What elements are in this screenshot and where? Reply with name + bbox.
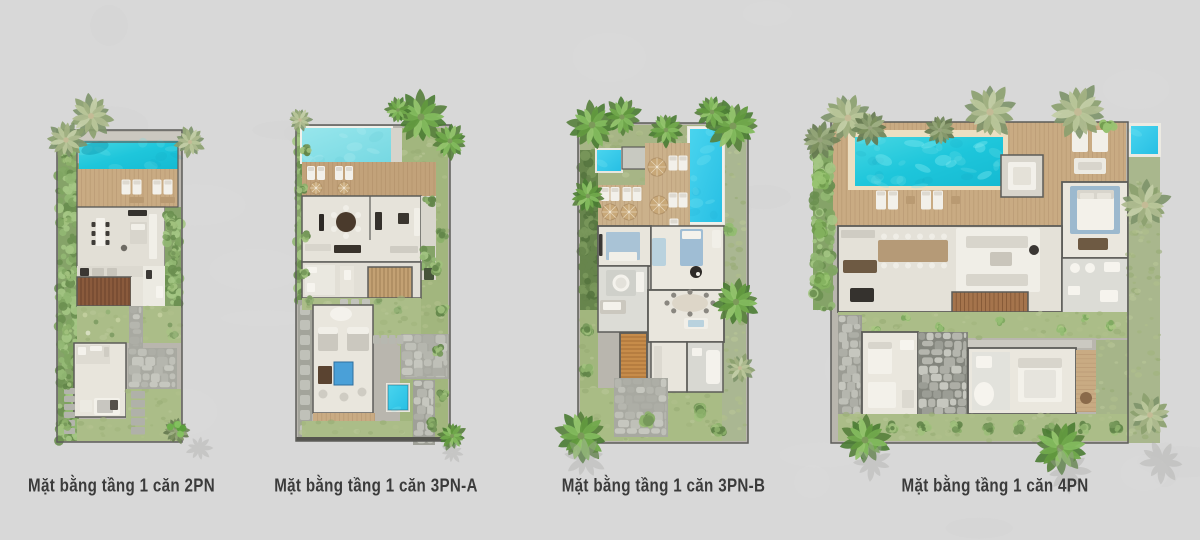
svg-text:Mặt bằng tầng 1 căn 4PN: Mặt bằng tầng 1 căn 4PN	[902, 475, 1089, 496]
svg-text:Mặt bằng tầng 1 căn 2PN: Mặt bằng tầng 1 căn 2PN	[28, 475, 215, 496]
svg-text:Mặt bằng tầng 1 căn 3PN-A: Mặt bằng tầng 1 căn 3PN-A	[274, 475, 478, 496]
svg-text:Mặt bằng tầng 1 căn 3PN-B: Mặt bằng tầng 1 căn 3PN-B	[562, 475, 766, 496]
